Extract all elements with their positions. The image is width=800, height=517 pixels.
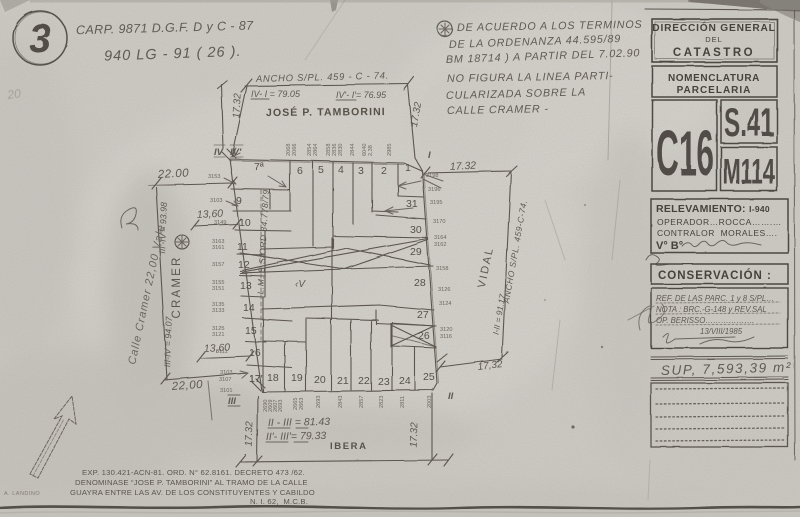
svg-text:C16: C16 [656, 117, 714, 189]
svg-text:22.00: 22.00 [157, 167, 190, 181]
svg-text:IV′: IV′ [230, 147, 242, 158]
svg-text:12: 12 [238, 259, 250, 271]
svg-text:23: 23 [378, 376, 390, 388]
svg-text:RELEVAMIENTO: I-940: RELEVAMIENTO: I-940 [656, 203, 770, 215]
svg-text:3153: 3153 [208, 174, 220, 180]
svg-text:2693: 2693 [316, 396, 322, 408]
svg-text:31: 31 [406, 198, 418, 210]
svg-text:2844: 2844 [350, 144, 356, 156]
svg-text:11: 11 [237, 241, 248, 253]
svg-text:3164: 3164 [434, 235, 446, 241]
svg-text:IV′- I′= 76.95: IV′- I′= 76.95 [336, 90, 387, 100]
svg-text:CATASTRO: CATASTRO [673, 47, 755, 59]
svg-text:7ª: 7ª [254, 161, 264, 173]
svg-text:A. LANDINO: A. LANDINO [4, 491, 40, 497]
svg-text:2843: 2843 [338, 396, 344, 408]
svg-text:OP. BERISSO……………….: OP. BERISSO………………. [656, 316, 754, 325]
svg-text:3103: 3103 [210, 198, 222, 204]
svg-text:13,60: 13,60 [197, 208, 224, 221]
svg-text:3116: 3116 [440, 334, 452, 340]
svg-text:3157: 3157 [212, 262, 224, 268]
svg-text:22: 22 [358, 375, 370, 387]
svg-text:JOSÉ P. TAMBORINI: JOSÉ P. TAMBORINI [266, 105, 386, 119]
svg-text:CALLE CRAMER -: CALLE CRAMER - [447, 103, 549, 117]
svg-text:2: 2 [381, 165, 387, 177]
svg-text:22,00: 22,00 [170, 379, 203, 393]
svg-text:3170: 3170 [433, 219, 445, 225]
svg-text:3158: 3158 [436, 266, 448, 272]
svg-text:2,38: 2,38 [368, 145, 374, 156]
svg-text:3126: 3126 [438, 287, 450, 293]
svg-text:III-IV = 94.07: III-IV = 94.07 [162, 315, 174, 367]
svg-text:3133: 3133 [212, 308, 224, 314]
svg-text:I: I [428, 150, 431, 161]
svg-text:GUAYRA ENTRE LAS AV. DE LOS CO: GUAYRA ENTRE LAS AV. DE LOS CONSTITUYENT… [70, 488, 315, 497]
svg-text:DENOMINASE “JOSE P. TAMBORINI”: DENOMINASE “JOSE P. TAMBORINI” AL TRAMO … [75, 478, 308, 487]
svg-text:CONSERVACIÓN :: CONSERVACIÓN : [658, 269, 772, 282]
svg-text:3162: 3162 [434, 242, 446, 248]
svg-text:26: 26 [418, 330, 430, 342]
svg-text:29: 29 [410, 246, 422, 258]
svg-text:17.32: 17.32 [450, 160, 477, 173]
svg-text:20: 20 [5, 86, 21, 102]
svg-text:CONTRALOR MORALES….: CONTRALOR MORALES…. [657, 228, 778, 238]
svg-text:2864: 2864 [313, 144, 319, 156]
svg-text:M114: M114 [723, 151, 775, 192]
svg-text:2985: 2985 [387, 144, 393, 156]
svg-text:3151: 3151 [212, 286, 224, 292]
svg-text:V° B°: V° B° [656, 240, 683, 252]
svg-text:21: 21 [337, 375, 349, 387]
svg-text:3: 3 [358, 165, 364, 177]
svg-text:13/VIII/1985: 13/VIII/1985 [700, 327, 743, 336]
svg-text:DEL: DEL [705, 35, 723, 44]
svg-text:‹V: ‹V [295, 279, 306, 290]
svg-text:NOTA : BRC.-G-148 y REV.SAL: NOTA : BRC.-G-148 y REV.SAL [656, 305, 767, 314]
svg-text:IV: IV [214, 147, 224, 158]
svg-text:2857: 2857 [359, 396, 365, 408]
svg-text:17: 17 [249, 373, 261, 385]
svg-text:CRAMER: CRAMER [171, 255, 183, 318]
svg-text:PARCELARIA: PARCELARIA [677, 85, 752, 96]
svg-text:2830: 2830 [338, 144, 344, 156]
svg-text:6: 6 [297, 165, 303, 177]
svg-text:25: 25 [423, 371, 435, 383]
svg-text:3124: 3124 [439, 301, 451, 307]
svg-text:II - III = 81.43: II - III = 81.43 [268, 416, 331, 429]
svg-text:DIRECCIÓN GENERAL: DIRECCIÓN GENERAL [652, 21, 775, 34]
svg-text:27: 27 [417, 309, 429, 321]
svg-text:4: 4 [338, 164, 344, 176]
svg-text:3195: 3195 [430, 200, 442, 206]
svg-text:19: 19 [291, 372, 303, 384]
svg-text:20: 20 [314, 374, 326, 386]
svg-text:3121: 3121 [212, 332, 224, 338]
svg-text:2823: 2823 [379, 396, 385, 408]
svg-text:NOMENCLATURA: NOMENCLATURA [668, 73, 760, 84]
svg-text:2693: 2693 [278, 400, 284, 412]
svg-text:24: 24 [399, 375, 411, 387]
svg-text:II: II [448, 391, 454, 402]
svg-text:18: 18 [267, 372, 279, 384]
svg-text:17.32: 17.32 [231, 93, 243, 119]
svg-text:OPERADOR…ROCCA…….…: OPERADOR…ROCCA…….… [657, 217, 782, 227]
svg-text:5: 5 [318, 164, 324, 176]
svg-text:IV- I = 79.05: IV- I = 79.05 [251, 89, 301, 99]
svg-text:3107: 3107 [219, 377, 231, 383]
svg-text:REF. DE LAS PARC. 1 y 8 S/PL…: REF. DE LAS PARC. 1 y 8 S/PL… [656, 294, 774, 303]
svg-text:S.41: S.41 [724, 101, 774, 145]
svg-text:16: 16 [249, 347, 261, 359]
svg-text:2811: 2811 [400, 396, 406, 408]
svg-text:14: 14 [243, 302, 255, 314]
svg-text:3: 3 [29, 17, 51, 61]
svg-text:III: III [228, 396, 236, 407]
svg-text:17.32: 17.32 [244, 421, 256, 447]
svg-text:28: 28 [414, 277, 426, 289]
svg-text:3103: 3103 [220, 370, 232, 376]
svg-text:9: 9 [236, 195, 242, 207]
svg-text:IBERA: IBERA [330, 441, 368, 452]
svg-text:EXP. 130.421-ACN-81. ORD. N° 6: EXP. 130.421-ACN-81. ORD. N° 62.8161. DE… [82, 468, 305, 477]
svg-text:N. I. 62, M.C.B.: N. I. 62, M.C.B. [250, 497, 308, 506]
svg-text:17.32: 17.32 [409, 422, 421, 448]
svg-text:2663: 2663 [299, 398, 305, 410]
svg-text:10: 10 [239, 217, 251, 229]
svg-text:3196: 3196 [428, 187, 440, 193]
svg-text:13: 13 [240, 280, 252, 292]
svg-text:15: 15 [245, 325, 257, 337]
svg-text:2003: 2003 [427, 396, 433, 408]
svg-text:30: 30 [410, 224, 422, 236]
svg-text:3111: 3111 [216, 349, 228, 355]
svg-text:3120: 3120 [440, 327, 452, 333]
svg-text:3101: 3101 [220, 388, 232, 394]
svg-text:1: 1 [405, 162, 411, 174]
svg-text:2066: 2066 [292, 144, 298, 156]
svg-text:3161: 3161 [212, 245, 224, 251]
svg-text:II′- III′= 79.33: II′- III′= 79.33 [266, 430, 327, 443]
svg-text:3149: 3149 [214, 220, 226, 226]
